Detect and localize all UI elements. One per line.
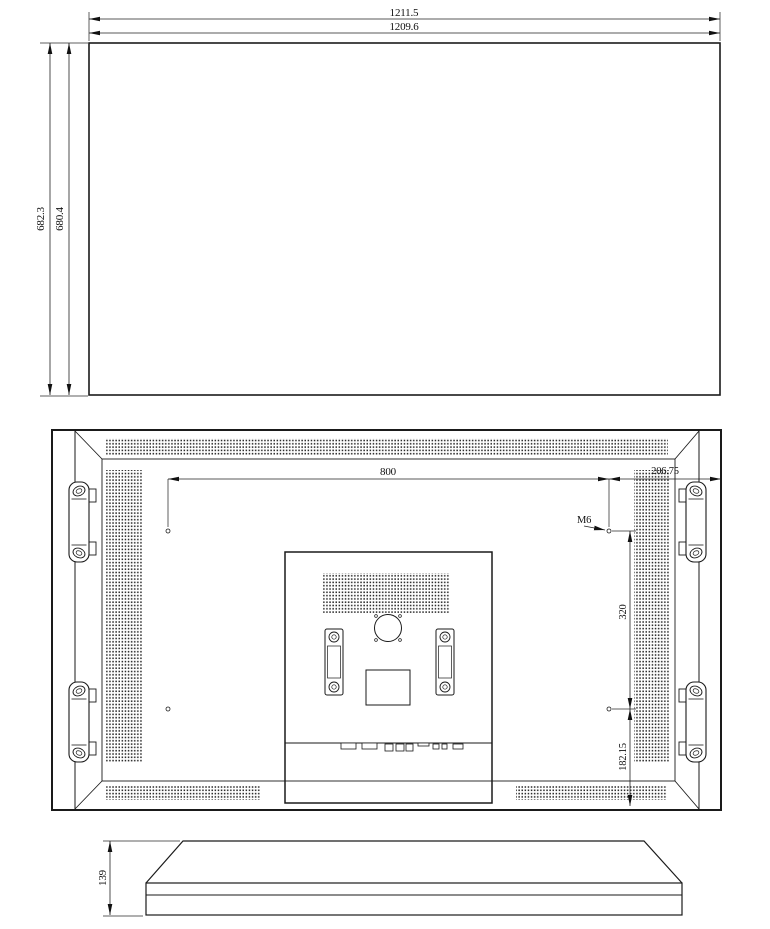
connector-port [362,743,377,749]
dim-label-mount-width: 800 [380,466,397,478]
dim-label-right-offset: 206.75 [651,466,679,477]
rear-view: 800 206.75 M6 320 182.15 [52,430,721,810]
front-view: 1211.5 1209.6 682.3 680.4 [35,7,720,396]
vesa-hole-top-left [166,529,170,533]
vent-grille-bottom-left [106,786,260,800]
connector-port [396,744,404,751]
dim-label-height-outer: 682.3 [35,206,47,230]
connector-port [406,744,413,751]
vent-grille-plate [323,573,450,613]
vesa-hole-top-right [607,529,611,533]
dim-label-mount-thread: M6 [577,515,591,526]
display-dimension-drawing: 1211.5 1209.6 682.3 680.4 [0,0,770,929]
vesa-hole-bottom-left [166,707,170,711]
connector-port [442,744,447,749]
dim-label-height-inner: 680.4 [54,206,66,230]
connector-port [453,744,463,749]
connector-port [341,743,356,749]
vesa-hole-bottom-right [607,707,611,711]
dim-label-mount-height: 320 [618,604,629,619]
front-panel-outline [89,43,720,395]
dim-label-depth: 139 [97,869,109,886]
vent-grille-bottom-right [516,786,667,800]
technical-drawing-canvas: 1211.5 1209.6 682.3 680.4 [0,0,770,929]
fan-cutout [375,615,402,642]
access-cover [366,670,410,705]
dim-label-width-outer: 1211.5 [390,7,419,19]
connector-port [385,744,393,751]
connector-port [433,744,439,749]
vent-grille-right [634,470,670,762]
side-view: 139 [97,841,682,916]
vent-grille-top [106,438,668,455]
side-body [146,883,682,915]
dim-label-bottom-offset: 182.15 [618,743,629,771]
connector-port [418,743,429,746]
dim-label-width-inner: 1209.6 [389,21,419,33]
side-top-face [146,841,682,883]
vent-grille-left [106,470,142,762]
